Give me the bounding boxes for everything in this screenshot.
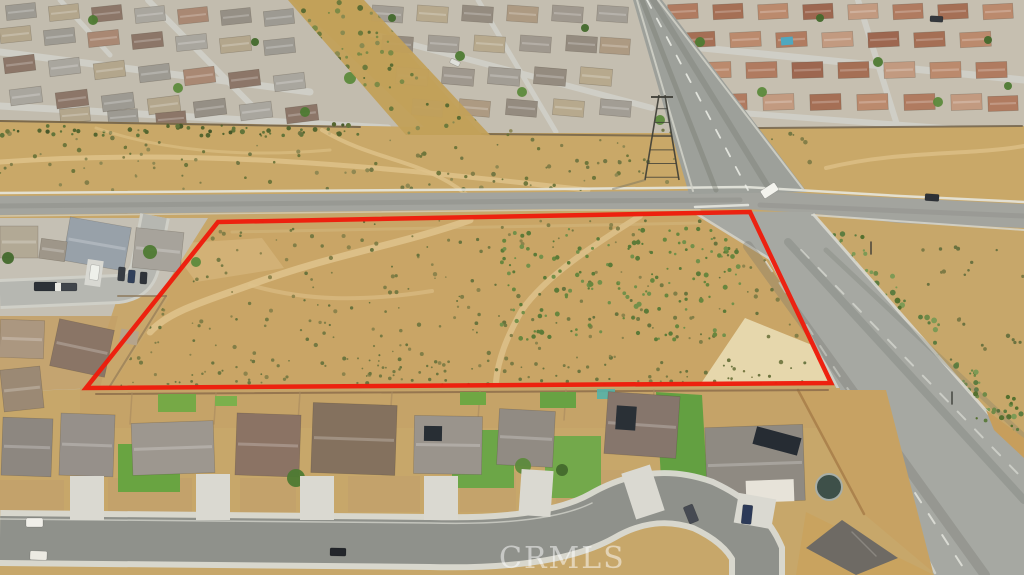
shrub <box>447 239 450 242</box>
tree <box>143 245 157 259</box>
shrub <box>487 351 491 355</box>
shrub <box>239 235 242 238</box>
roof-ridge <box>238 444 298 446</box>
shrub <box>973 391 978 396</box>
shrub <box>245 127 247 129</box>
shrub <box>792 134 794 136</box>
shrub <box>622 317 624 319</box>
shrub <box>329 324 331 326</box>
shrub <box>491 172 496 177</box>
shrub <box>366 51 369 54</box>
shrub <box>586 166 590 170</box>
shrub <box>477 313 481 317</box>
shrub <box>122 156 125 159</box>
shrub <box>534 330 537 333</box>
shrub <box>599 330 602 333</box>
shrub <box>723 285 728 290</box>
shrub <box>724 238 728 242</box>
shrub <box>591 272 595 276</box>
roof-ridge <box>906 102 933 103</box>
shrub <box>512 308 515 311</box>
shrub <box>622 337 624 339</box>
shrub <box>519 303 522 306</box>
house <box>175 33 207 51</box>
house <box>848 3 879 20</box>
shrub <box>696 271 701 276</box>
house <box>48 3 79 21</box>
shrub <box>192 339 195 342</box>
shrub <box>51 132 55 136</box>
house <box>441 67 474 87</box>
shrub <box>642 172 644 174</box>
shrub <box>83 167 85 169</box>
shrub <box>137 356 141 360</box>
tree <box>388 14 396 22</box>
shrub <box>387 41 389 43</box>
roof-ridge <box>850 11 876 12</box>
shrub <box>690 244 694 248</box>
shrub <box>575 333 578 336</box>
shrub <box>539 255 543 259</box>
shrub <box>553 184 556 187</box>
driveway <box>424 476 458 520</box>
house <box>552 99 584 118</box>
shrub <box>976 417 978 419</box>
shrub <box>240 129 245 134</box>
shrub <box>179 381 181 383</box>
shrub <box>648 375 651 378</box>
roof-ridge <box>765 102 792 103</box>
shrub <box>124 146 127 149</box>
shrub <box>376 36 379 39</box>
tree <box>655 115 665 125</box>
tree <box>933 97 943 107</box>
house <box>487 67 520 87</box>
shrub <box>498 315 500 317</box>
shrub <box>597 162 600 165</box>
shrub <box>374 82 379 87</box>
shrub <box>895 286 897 288</box>
shrub <box>369 302 371 304</box>
house <box>904 93 936 110</box>
house <box>506 5 538 23</box>
house <box>579 67 612 87</box>
shrub <box>221 370 223 372</box>
shrub <box>476 332 478 334</box>
shrub <box>507 271 511 275</box>
shrub <box>292 295 296 299</box>
shrub <box>344 130 346 132</box>
shrub <box>40 153 42 155</box>
tree <box>1004 82 1012 90</box>
shrub <box>382 366 385 369</box>
shrub <box>536 330 540 334</box>
shrub <box>447 360 450 363</box>
shrub <box>503 247 507 251</box>
car <box>140 272 148 284</box>
shrub <box>719 277 721 279</box>
shrub <box>713 332 718 337</box>
shrub <box>598 280 603 285</box>
shrub <box>942 269 946 273</box>
shrub <box>555 312 560 317</box>
shrub <box>195 278 199 282</box>
shrub <box>928 321 931 324</box>
car-body <box>34 282 57 291</box>
shrub <box>433 272 437 276</box>
shrub <box>150 351 152 353</box>
shrub <box>132 382 134 384</box>
shrub <box>589 335 592 338</box>
shrub <box>256 145 258 147</box>
shrub <box>642 293 645 296</box>
shrub <box>735 273 737 275</box>
shrub <box>209 328 211 330</box>
roof-ridge <box>2 338 42 339</box>
shrub <box>631 316 635 320</box>
shrub <box>453 316 456 319</box>
shrub <box>410 73 414 77</box>
shrub <box>5 129 10 134</box>
shrub <box>479 250 482 253</box>
house <box>473 35 505 53</box>
tree <box>757 87 767 97</box>
shrub <box>616 226 620 230</box>
car-body <box>30 551 47 561</box>
house <box>416 5 448 23</box>
shrub <box>288 360 290 362</box>
shrub <box>374 242 378 246</box>
shrub <box>265 375 269 379</box>
shrub <box>260 135 262 137</box>
shrub <box>388 290 392 294</box>
shrub <box>531 334 535 338</box>
shrub <box>526 231 531 236</box>
shrub <box>146 148 150 152</box>
tree <box>88 15 98 25</box>
shrub <box>620 271 622 273</box>
shrub <box>281 134 285 138</box>
shrub <box>903 300 906 303</box>
shrub <box>622 291 626 295</box>
shrub <box>199 319 203 323</box>
house <box>0 25 32 43</box>
shrub <box>578 246 582 250</box>
shrub <box>758 374 761 377</box>
shrub <box>341 15 345 19</box>
roof-ridge <box>990 103 1016 104</box>
shrub <box>45 129 49 133</box>
shrub <box>472 329 474 331</box>
shrub <box>650 278 655 283</box>
shrub <box>950 358 952 360</box>
car <box>925 194 939 202</box>
car-body <box>26 518 43 527</box>
shrub <box>221 124 223 126</box>
shrub <box>460 157 463 160</box>
house <box>93 60 126 80</box>
tree <box>984 36 992 44</box>
shrub <box>971 369 973 371</box>
shrub <box>711 238 713 240</box>
shrub <box>422 151 427 156</box>
shrub <box>297 154 300 157</box>
roof-ridge <box>870 39 897 40</box>
house <box>519 35 551 53</box>
shrub <box>48 163 51 166</box>
shrub <box>184 163 188 167</box>
shrub <box>500 323 504 327</box>
shrub <box>368 372 371 375</box>
shrub <box>436 171 441 176</box>
shrub <box>152 162 155 165</box>
shrub <box>252 351 256 355</box>
shrub <box>660 361 663 364</box>
lawn <box>215 396 237 406</box>
shrub <box>696 259 700 263</box>
shrub <box>589 220 591 222</box>
shrub <box>63 143 67 147</box>
shrub <box>526 338 529 341</box>
shrub <box>497 144 499 146</box>
shrub <box>153 167 156 170</box>
shrub <box>324 322 326 324</box>
backyard-pool <box>781 36 794 45</box>
shrub <box>618 287 621 290</box>
shrub <box>803 140 808 145</box>
shrub <box>475 321 479 325</box>
shrub <box>235 380 238 383</box>
shrub <box>647 323 651 327</box>
shrub <box>704 371 708 375</box>
shrub <box>488 246 491 249</box>
shrub <box>387 67 391 71</box>
shrub <box>431 263 434 266</box>
house <box>0 366 44 412</box>
house <box>551 5 583 23</box>
shrub <box>721 256 723 258</box>
shrub <box>444 379 447 382</box>
house <box>792 61 824 78</box>
shrub <box>111 188 114 191</box>
shrub <box>510 309 512 311</box>
shrub <box>779 360 783 364</box>
shrub <box>244 176 247 179</box>
shrub <box>341 123 344 126</box>
shrub <box>585 255 588 258</box>
shrub <box>591 247 594 250</box>
shrub <box>957 318 961 322</box>
truck <box>34 282 57 291</box>
house <box>893 3 924 20</box>
shrub <box>558 237 560 239</box>
shrub <box>471 279 475 283</box>
shrub <box>531 318 534 321</box>
shrub <box>502 178 504 180</box>
house <box>599 99 631 118</box>
shrub <box>166 124 170 128</box>
shrub <box>638 170 640 172</box>
shrub <box>621 313 625 317</box>
shrub <box>398 357 402 361</box>
driveway <box>300 476 334 520</box>
shrub <box>363 77 365 79</box>
shrub <box>17 130 20 133</box>
shrub <box>229 130 233 134</box>
shrub <box>320 361 324 365</box>
shrub <box>408 348 411 351</box>
shrub <box>704 281 707 284</box>
shrub <box>617 142 619 144</box>
shrub <box>248 379 251 382</box>
shrub <box>519 244 524 249</box>
house <box>3 54 36 74</box>
shrub <box>357 5 363 11</box>
shrub <box>60 130 62 132</box>
tree <box>816 14 824 22</box>
shrub <box>235 366 237 368</box>
shrub <box>445 276 447 278</box>
shrub <box>719 308 721 310</box>
shrub <box>732 302 735 305</box>
shrub <box>673 291 677 295</box>
shrub <box>456 300 458 302</box>
shrub <box>407 131 410 134</box>
shrub <box>520 234 524 238</box>
shrub <box>788 132 792 136</box>
shrub <box>553 240 555 242</box>
shrub <box>502 239 506 243</box>
shrub <box>417 254 420 257</box>
shrub <box>608 263 613 268</box>
shrub <box>128 127 133 132</box>
tree <box>695 37 705 47</box>
house <box>930 61 962 78</box>
tree <box>581 24 589 32</box>
shrub <box>373 345 375 347</box>
shrub <box>384 310 387 313</box>
dirt-front-yard <box>240 478 296 512</box>
shrub <box>495 165 499 169</box>
shrub <box>622 145 625 148</box>
shrub <box>592 176 596 180</box>
shrub <box>331 272 333 274</box>
shrub <box>296 150 300 154</box>
shrub <box>978 381 980 383</box>
shrub <box>521 311 524 314</box>
shrub <box>526 264 530 268</box>
shrub <box>713 237 716 240</box>
shrub <box>236 161 240 165</box>
shrub <box>388 377 392 381</box>
shrub <box>285 258 289 262</box>
shrub <box>708 337 710 339</box>
shrub <box>608 301 611 304</box>
shrub <box>890 274 895 279</box>
shrub <box>236 249 239 252</box>
shrub <box>501 226 504 229</box>
shrub <box>599 139 601 141</box>
shrub <box>682 240 686 244</box>
shrub <box>540 308 544 312</box>
shrub <box>535 342 538 345</box>
shrub <box>411 235 413 237</box>
shrub <box>630 299 633 302</box>
shrub <box>248 302 251 305</box>
shrub <box>973 369 978 374</box>
shrub <box>540 379 543 382</box>
house <box>884 61 916 78</box>
shrub <box>193 280 195 282</box>
shrub <box>668 282 670 284</box>
shrub <box>350 306 353 309</box>
shrub <box>749 266 752 269</box>
shrub <box>264 324 267 327</box>
car-body <box>117 267 125 282</box>
shrub <box>607 244 610 247</box>
roof-ridge <box>932 70 959 71</box>
shrub <box>13 129 15 131</box>
shrub <box>383 286 387 290</box>
shrub <box>727 268 731 272</box>
house <box>746 61 778 78</box>
shrub <box>370 248 374 252</box>
shrub <box>306 338 310 342</box>
house <box>132 228 184 273</box>
shrub <box>428 378 431 381</box>
shrub <box>398 307 400 309</box>
shrub <box>191 374 193 376</box>
shrub <box>516 294 520 298</box>
shrub <box>969 372 971 374</box>
shrub <box>454 146 457 149</box>
shrub <box>672 337 676 341</box>
shrub <box>192 322 194 324</box>
shrub <box>709 229 712 232</box>
shrub <box>567 261 571 265</box>
shrub <box>927 283 930 286</box>
shrub <box>478 364 481 367</box>
shrub <box>639 276 642 279</box>
shrub <box>668 331 672 335</box>
shrub <box>390 63 394 67</box>
shrub <box>567 366 569 368</box>
house <box>235 413 301 477</box>
shrub <box>710 250 713 253</box>
shrub <box>656 368 660 372</box>
shrub <box>4 167 7 170</box>
shrub <box>33 154 37 158</box>
shrub <box>136 134 140 138</box>
shrub <box>357 52 360 55</box>
shrub <box>539 220 542 223</box>
shrub <box>283 378 286 381</box>
shrub <box>552 246 554 248</box>
shrub <box>375 32 378 35</box>
car <box>127 270 135 284</box>
shrub <box>577 370 580 373</box>
shrub <box>1012 338 1015 341</box>
shrub <box>921 248 924 251</box>
shrub <box>545 314 548 317</box>
car-body <box>140 272 148 284</box>
roof-ridge <box>62 444 112 446</box>
shrub <box>727 377 729 379</box>
shrub <box>999 415 1004 420</box>
shrub <box>644 309 649 314</box>
shrub <box>201 372 204 375</box>
roof-ridge <box>4 446 50 448</box>
